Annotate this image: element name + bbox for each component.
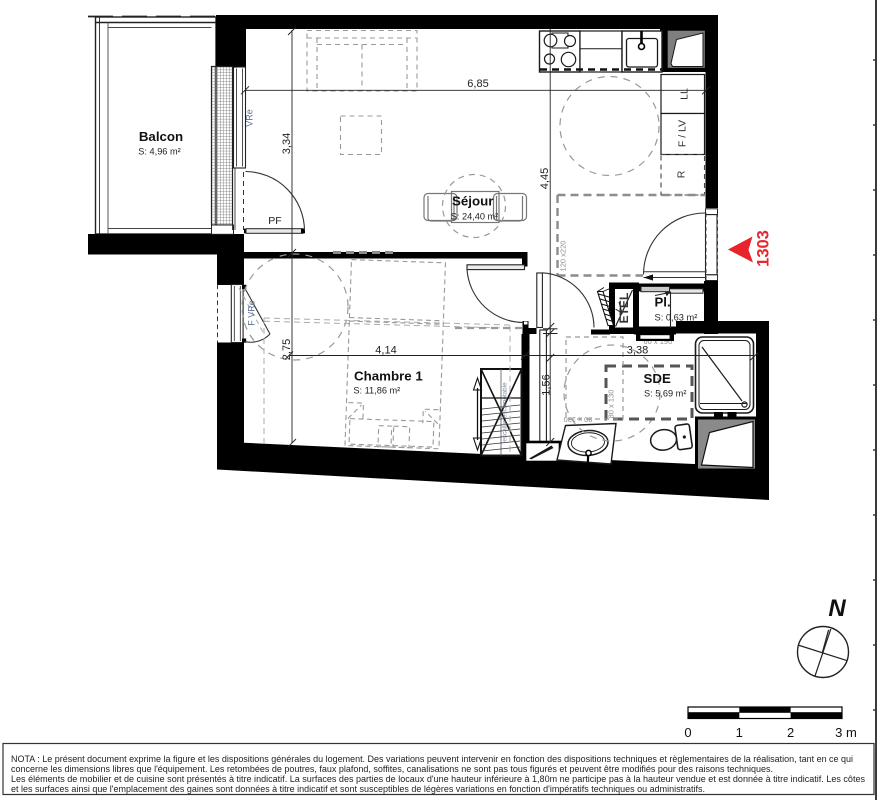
svg-text:ETEL: ETEL <box>617 293 631 324</box>
svg-text:2: 2 <box>787 725 794 740</box>
svg-text:F VRe: F VRe <box>247 300 257 326</box>
svg-text:3,34: 3,34 <box>281 133 293 154</box>
svg-text:Séjour: Séjour <box>452 194 493 209</box>
svg-text:NOTA : Le présent document exp: NOTA : Le présent document exprime la fi… <box>11 754 853 764</box>
svg-text:0: 0 <box>684 725 691 740</box>
svg-text:S: 11,86 m²: S: 11,86 m² <box>353 386 400 396</box>
svg-text:3,38: 3,38 <box>627 345 648 357</box>
svg-text:SDE: SDE <box>644 371 671 386</box>
svg-text:1303: 1303 <box>755 230 773 267</box>
svg-text:et les surfaces ainsi que l'em: et les surfaces ainsi que l'emplacement … <box>11 784 705 794</box>
svg-text:Balcon: Balcon <box>139 129 183 144</box>
svg-text:VRe: VRe <box>245 109 255 127</box>
svg-text:concerne les dimensions libres: concerne les dimensions libres que l'équ… <box>11 764 773 774</box>
svg-text:80 x 130: 80 x 130 <box>607 390 616 419</box>
svg-text:S: 4,96 m²: S: 4,96 m² <box>138 147 180 157</box>
svg-text:S: 24,40 m²: S: 24,40 m² <box>451 212 499 222</box>
svg-text:N: N <box>828 595 846 622</box>
svg-text:escalier escamotable: escalier escamotable <box>502 382 509 442</box>
svg-text:PF: PF <box>268 215 281 227</box>
svg-text:Chambre 1: Chambre 1 <box>354 368 423 383</box>
svg-text:Pl.: Pl. <box>655 295 671 310</box>
svg-text:Les éléments de mobilier et de: Les éléments de mobilier et de cuisine s… <box>11 774 865 784</box>
svg-text:S: 0,63 m²: S: 0,63 m² <box>655 313 698 323</box>
svg-text:1: 1 <box>736 725 743 740</box>
svg-text:R: R <box>676 170 688 178</box>
svg-text:F / LV: F / LV <box>677 120 689 147</box>
svg-text:S: 5,69 m²: S: 5,69 m² <box>644 389 686 399</box>
svg-text:LL: LL <box>679 88 691 100</box>
svg-text:3 m: 3 m <box>835 725 857 740</box>
svg-text:6,85: 6,85 <box>467 78 488 90</box>
svg-text:4,14: 4,14 <box>375 345 396 357</box>
svg-text:4,45: 4,45 <box>539 168 551 189</box>
svg-text:1,56: 1,56 <box>541 374 553 395</box>
svg-text:80 x 130: 80 x 130 <box>564 415 593 424</box>
svg-text:120 x220: 120 x220 <box>559 241 568 272</box>
